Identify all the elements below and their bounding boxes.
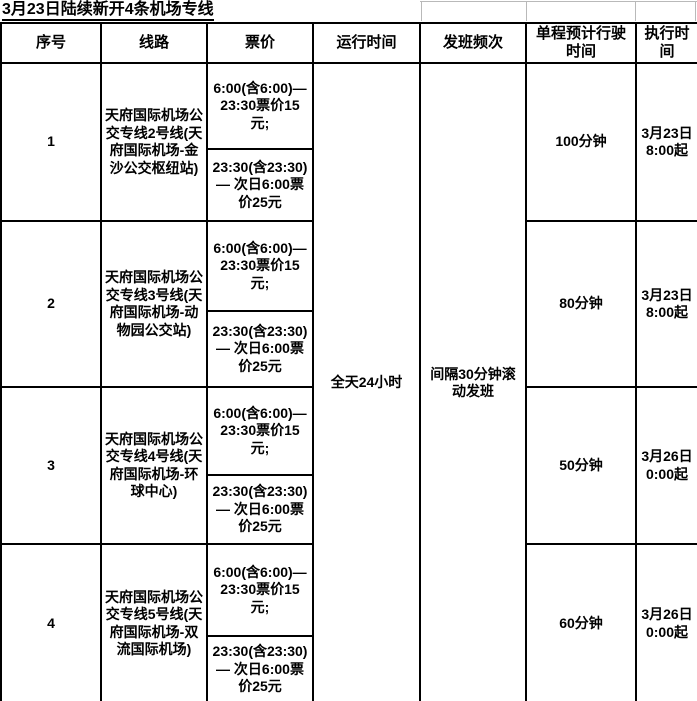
- duration-cell: 100分钟: [526, 63, 636, 221]
- effective-date-cell: 3月23日8:00起: [636, 221, 697, 387]
- operating-time-cell: 全天24小时: [313, 63, 420, 701]
- line-name-cell: 天府国际机场公交专线4号线(天府国际机场-环球中心): [101, 387, 207, 544]
- fare-day-cell: 6:00(含6:00)—23:30票价15元;: [207, 63, 313, 149]
- header-cell-effective: 执行时间: [636, 23, 697, 63]
- fare-night-cell: 23:30(含23:30)— 次日6:00票价25元: [207, 475, 313, 544]
- fare-day-cell: 6:00(含6:00)—23:30票价15元;: [207, 387, 313, 475]
- gridline-stub: [420, 1, 697, 2]
- header-cell-operating-time: 运行时间: [313, 23, 420, 63]
- line-name-cell: 天府国际机场公交专线2号线(天府国际机场-金沙公交枢纽站): [101, 63, 207, 221]
- gridline-stub: [421, 2, 422, 21]
- fare-day-cell: 6:00(含6:00)—23:30票价15元;: [207, 544, 313, 636]
- fare-night-cell: 23:30(含23:30)— 次日6:00票价25元: [207, 311, 313, 387]
- header-cell-fare: 票价: [207, 23, 313, 63]
- fare-night-cell: 23:30(含23:30)— 次日6:00票价25元: [207, 149, 313, 221]
- airport-lines-table: 序号 线路 票价 运行时间 发班频次 单程预计行驶时间 执行时间 1 天府国际机…: [0, 22, 697, 701]
- gridline-stub: [695, 2, 696, 21]
- row-number-cell: 2: [1, 221, 101, 387]
- title-bar: 3月23日陆续新开4条机场专线: [0, 0, 697, 22]
- row-number-cell: 1: [1, 63, 101, 221]
- header-row: 序号 线路 票价 运行时间 发班频次 单程预计行驶时间 执行时间: [1, 23, 697, 63]
- duration-cell: 80分钟: [526, 221, 636, 387]
- row-number-cell: 4: [1, 544, 101, 701]
- header-cell-number: 序号: [1, 23, 101, 63]
- duration-cell: 50分钟: [526, 387, 636, 544]
- gridline-stub: [526, 2, 527, 21]
- page-title: 3月23日陆续新开4条机场专线: [2, 0, 214, 21]
- header-cell-frequency: 发班频次: [420, 23, 526, 63]
- header-cell-duration: 单程预计行驶时间: [526, 23, 636, 63]
- line-name-cell: 天府国际机场公交专线3号线(天府国际机场-动物园公交站): [101, 221, 207, 387]
- fare-night-cell: 23:30(含23:30)— 次日6:00票价25元: [207, 636, 313, 701]
- table-row: 1 天府国际机场公交专线2号线(天府国际机场-金沙公交枢纽站) 6:00(含6:…: [1, 63, 697, 149]
- row-number-cell: 3: [1, 387, 101, 544]
- header-cell-line: 线路: [101, 23, 207, 63]
- duration-cell: 60分钟: [526, 544, 636, 701]
- fare-day-cell: 6:00(含6:00)—23:30票价15元;: [207, 221, 313, 311]
- frequency-cell: 间隔30分钟滚动发班: [420, 63, 526, 701]
- page: 3月23日陆续新开4条机场专线 序号 线路 票价 运行时间 发班频次 单程预计行…: [0, 0, 697, 701]
- effective-date-cell: 3月26日0:00起: [636, 387, 697, 544]
- gridline-stub: [635, 2, 636, 21]
- effective-date-cell: 3月26日0:00起: [636, 544, 697, 701]
- effective-date-cell: 3月23日8:00起: [636, 63, 697, 221]
- line-name-cell: 天府国际机场公交专线5号线(天府国际机场-双流国际机场): [101, 544, 207, 701]
